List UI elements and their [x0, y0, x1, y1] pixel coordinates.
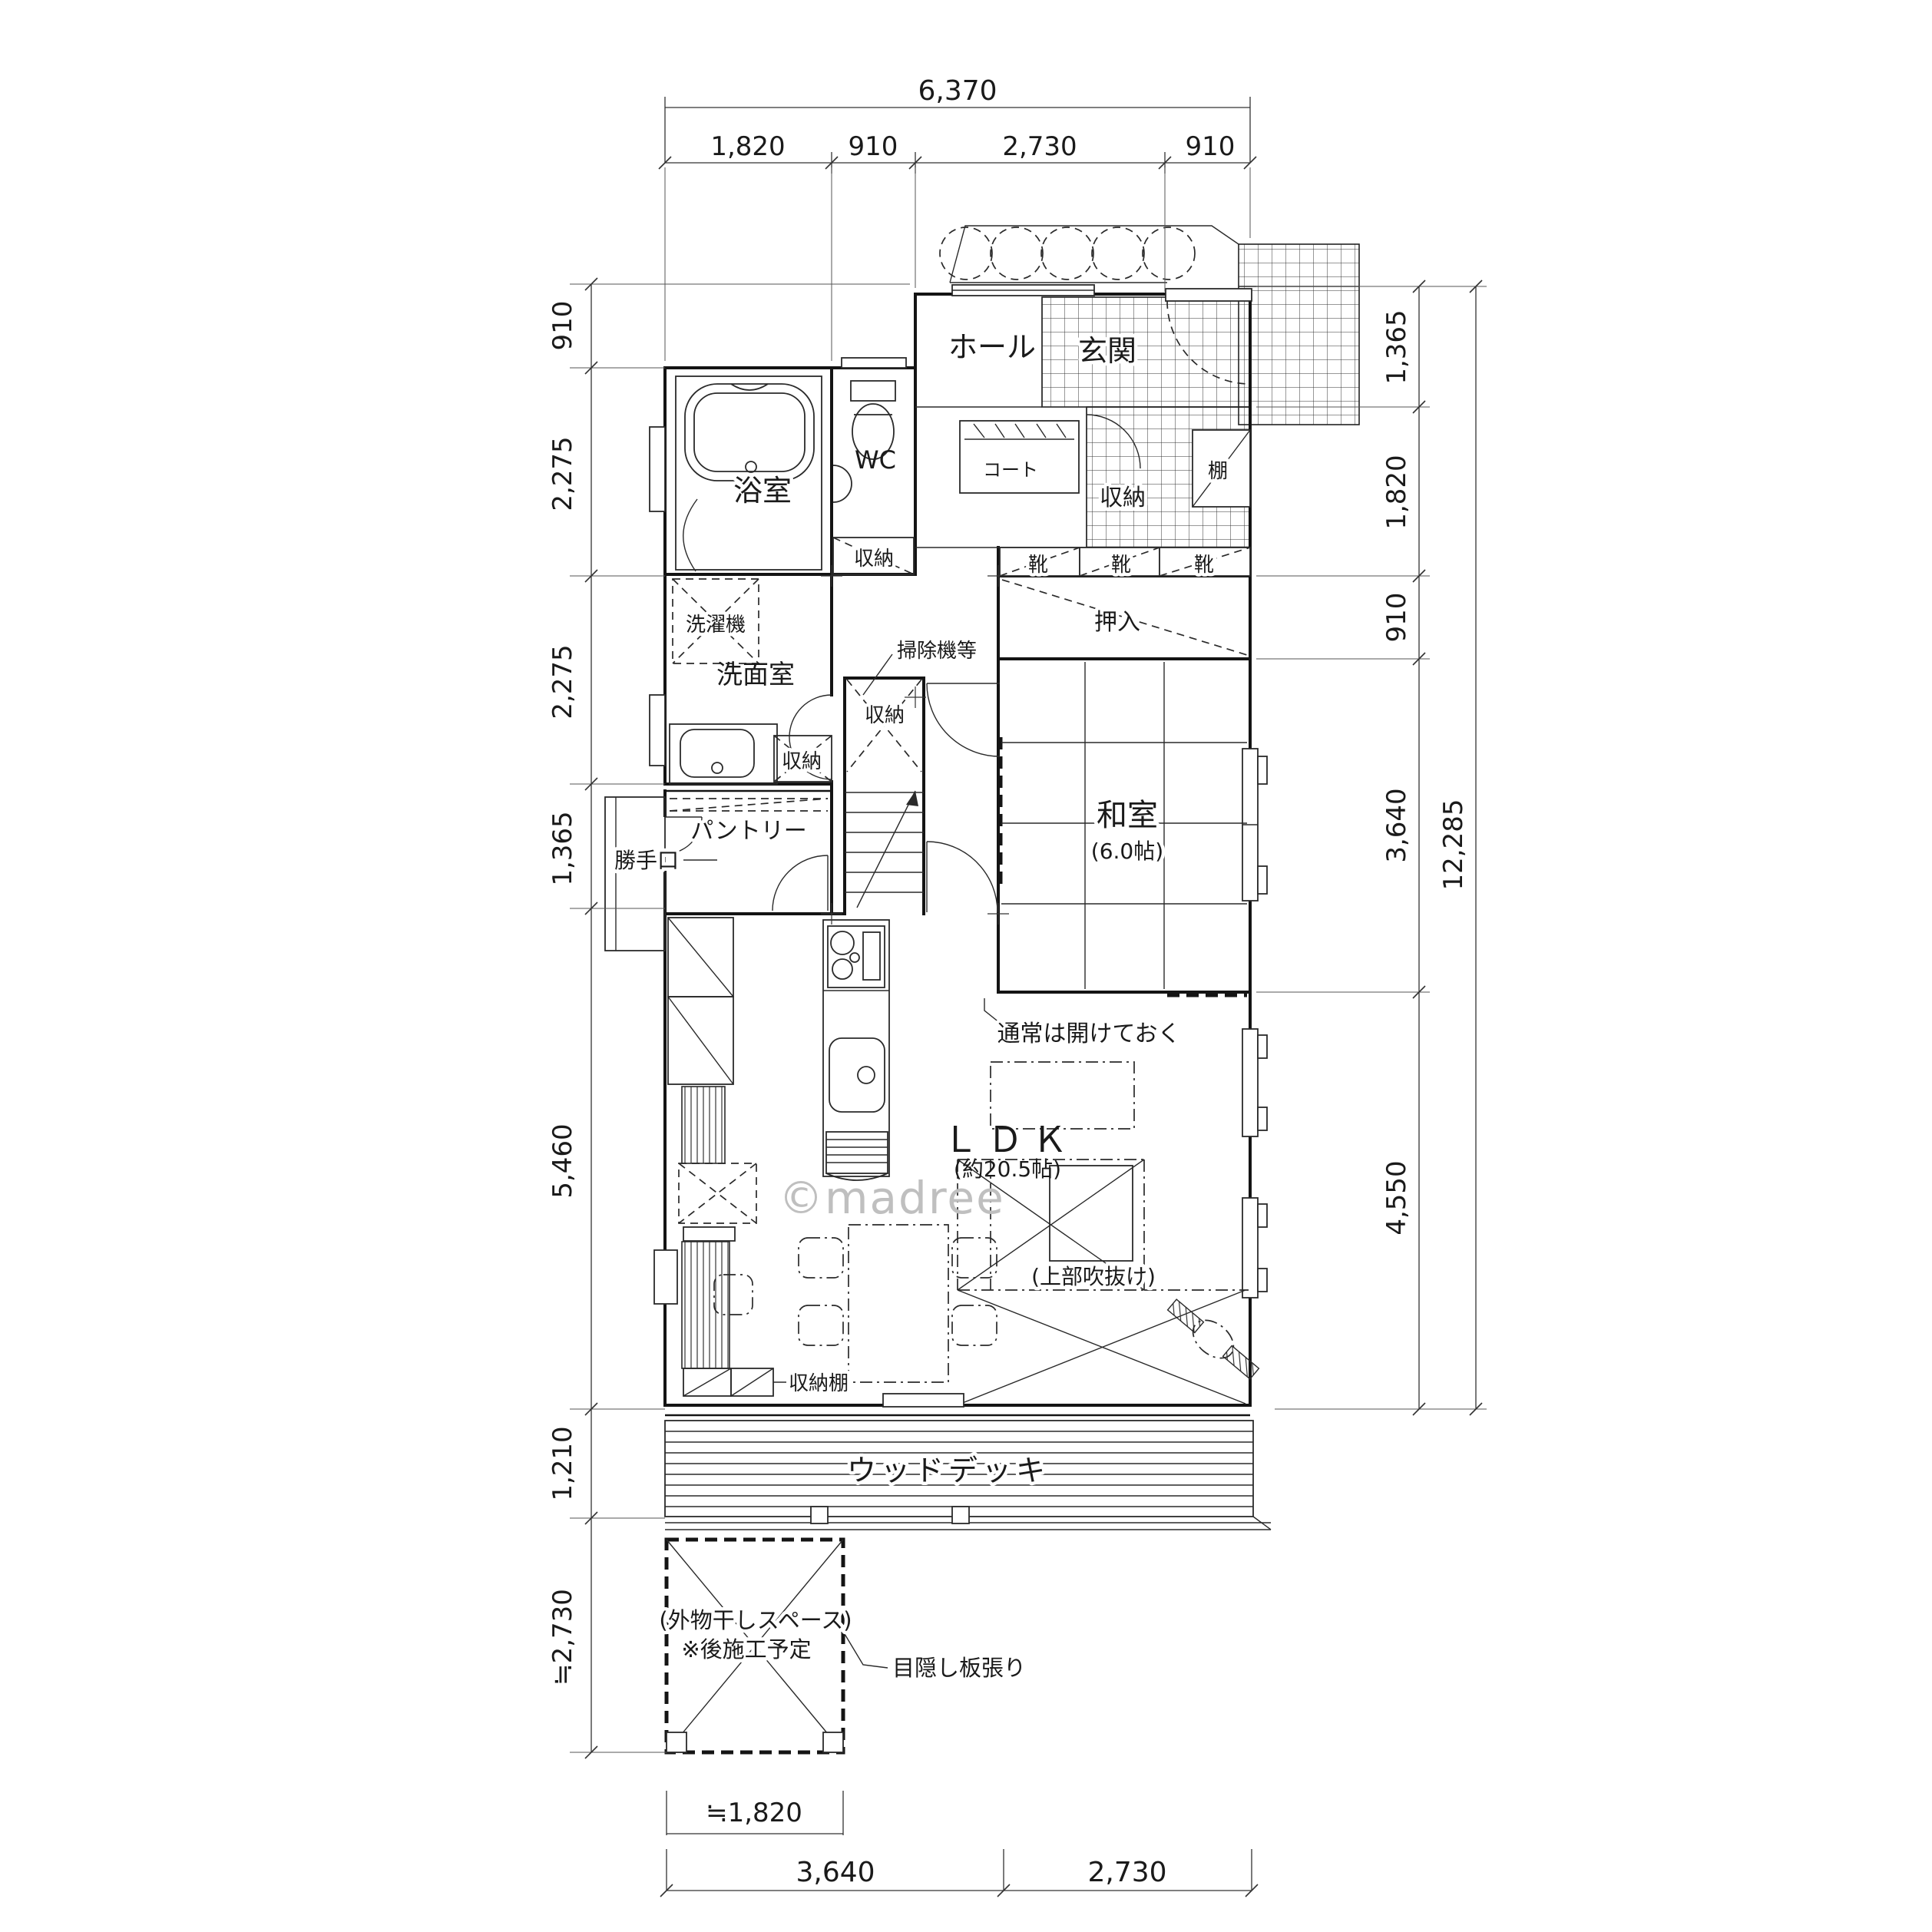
label-shelf: 棚 — [1208, 460, 1228, 483]
label-hall: ホール — [948, 330, 1036, 364]
label-ldk: ＬＤＫ — [943, 1119, 1077, 1160]
dim-right-0: 1,365 — [1381, 309, 1412, 384]
dim-right-1: 1,820 — [1381, 455, 1412, 529]
toilet — [833, 381, 895, 502]
dim-top-seg3: 910 — [1186, 131, 1236, 162]
label-storage-wc: 収納 — [854, 548, 894, 571]
label-drying-note: ※後施工予定 — [681, 1636, 811, 1662]
label-shoes-1: 靴 — [1028, 554, 1048, 577]
dim-bottom-seg1: 2,730 — [1087, 1857, 1166, 1888]
dim-top-seg2: 2,730 — [1002, 131, 1077, 162]
label-wood-deck: ウッドデッキ — [847, 1454, 1050, 1487]
dim-bottom-seg0: 3,640 — [796, 1857, 875, 1888]
dim-right-4: 4,550 — [1381, 1160, 1412, 1235]
label-wc: WC — [855, 445, 896, 475]
label-coat: コート — [983, 459, 1038, 481]
coat-closet — [960, 421, 1079, 493]
dim-top-seg1: 910 — [849, 131, 898, 162]
label-washitsu: 和室 — [1097, 798, 1158, 833]
sliding-partitions — [1001, 737, 1247, 995]
dim-left-0: 910 — [548, 301, 578, 351]
stairs — [845, 791, 924, 908]
dim-left-6: ≒2,730 — [548, 1589, 578, 1686]
label-bath: 浴室 — [733, 474, 792, 508]
watermark: ©madree — [779, 1172, 1005, 1224]
dim-left-3: 1,365 — [548, 811, 578, 885]
label-pantry: パントリー — [690, 818, 807, 845]
label-keep-open: 通常は開けておく — [997, 1021, 1180, 1047]
fixture-labels: 収納 収納 収納 収納 洗濯機 掃除機等 コート 棚 靴 靴 靴 押入 勝手口 … — [614, 459, 1228, 1681]
label-drying-space: (外物干しスペース) — [659, 1607, 852, 1633]
floor-plan: 6,370 1,820 910 2,730 910 910 2,275 2,27… — [0, 0, 1932, 1932]
dining-set — [714, 1225, 997, 1382]
label-backdoor: 勝手口 — [614, 848, 679, 873]
planting-strip — [940, 226, 1239, 283]
dim-left-5: 1,210 — [548, 1426, 578, 1500]
label-void-above: (上部吹抜け) — [1031, 1264, 1156, 1289]
kitchen-island — [823, 920, 889, 1180]
module-marks — [821, 565, 1009, 925]
label-storage-shelf: 収納棚 — [789, 1372, 849, 1395]
label-genkan: 玄関 — [1078, 334, 1136, 368]
label-shoes-2: 靴 — [1111, 554, 1131, 577]
dim-top-seg0: 1,820 — [710, 131, 785, 162]
dim-left-4: 5,460 — [548, 1123, 578, 1198]
label-storage-corridor: 収納 — [782, 750, 822, 773]
dim-bottom-approx: ≒1,820 — [706, 1798, 802, 1828]
label-storage-walkin: 収納 — [1100, 485, 1146, 511]
dim-left-1: 2,275 — [548, 436, 578, 511]
label-washer: 洗濯機 — [686, 614, 746, 637]
label-blind: 目隠し板張り — [892, 1655, 1026, 1681]
dim-right-3: 3,640 — [1381, 788, 1412, 862]
label-storage-stair: 収納 — [865, 704, 905, 727]
label-oshiire: 押入 — [1094, 609, 1140, 636]
dim-right-total: 12,285 — [1438, 799, 1469, 891]
dim-right-2: 910 — [1381, 593, 1412, 643]
kitchen-west-cabinets — [668, 918, 786, 1396]
label-vacuum: 掃除機等 — [897, 640, 977, 663]
dim-top-total: 6,370 — [918, 75, 997, 107]
label-washroom: 洗面室 — [716, 660, 795, 690]
label-washitsu-size: (6.0帖) — [1091, 839, 1163, 864]
label-shoes-3: 靴 — [1194, 554, 1214, 577]
vanity-sink — [670, 724, 777, 784]
dim-left-2: 2,275 — [548, 644, 578, 719]
